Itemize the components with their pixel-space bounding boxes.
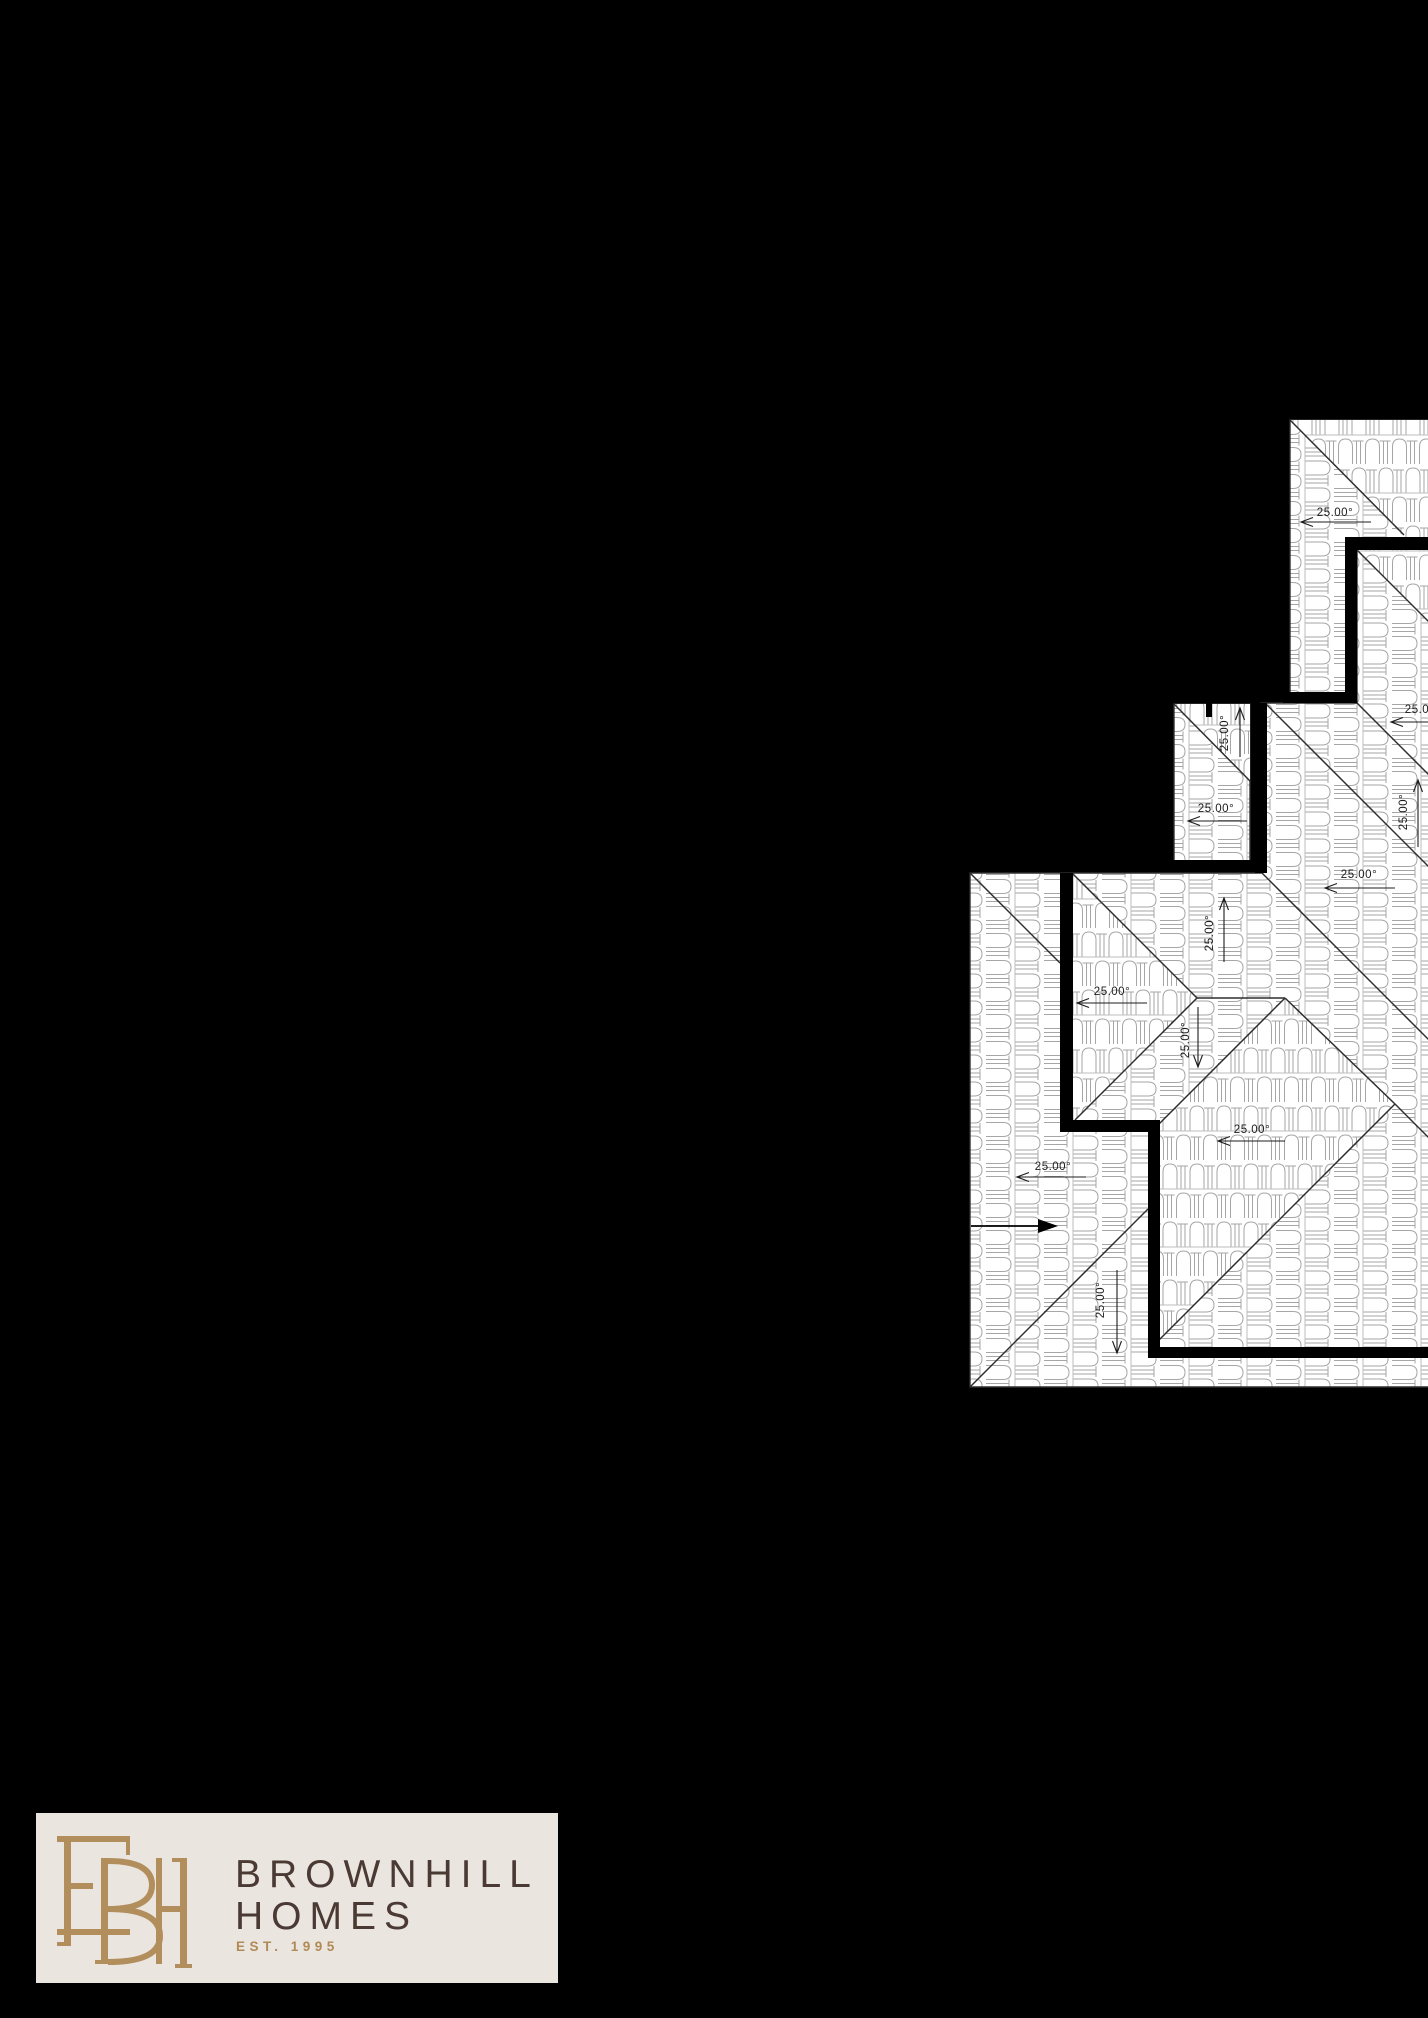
logo-name-line1: BROWNHILL bbox=[235, 1855, 539, 1894]
pitch-angle-label: 25.00° bbox=[1180, 1022, 1192, 1058]
pitch-angle-label: 25.00° bbox=[1341, 869, 1377, 881]
pitch-angle-label: 25.00° bbox=[1035, 1161, 1071, 1173]
pitch-angle-label: 25.00° bbox=[1094, 986, 1130, 998]
pitch-angle-label: 25.00° bbox=[1234, 1124, 1270, 1136]
pitch-angle-label: 25.00° bbox=[1219, 715, 1231, 751]
pitch-angle-label: 25.00° bbox=[1198, 803, 1234, 815]
pitch-angle-label: 25.00° bbox=[1095, 1282, 1107, 1318]
pitch-angle-label: 25.00° bbox=[1317, 507, 1353, 519]
pitch-angle-label: 25.00° bbox=[1204, 915, 1216, 951]
bh-monogram-icon bbox=[55, 1834, 197, 1970]
pitch-angle-label: 25.00° bbox=[1398, 794, 1410, 830]
roof-plan-drawing: 25.00°25.00°25.00°25.00°25.00°25.00°25.0… bbox=[0, 0, 1428, 2018]
drawing-sheet: 25.00°25.00°25.00°25.00°25.00°25.00°25.0… bbox=[0, 0, 1428, 2018]
logo-name-line2: HOMES bbox=[235, 1897, 418, 1936]
brownhill-homes-logo: BROWNHILL HOMES EST. 1995 bbox=[36, 1813, 558, 1983]
logo-established-tagline: EST. 1995 bbox=[236, 1940, 339, 1954]
pitch-angle-label: 25.00° bbox=[1405, 704, 1428, 716]
